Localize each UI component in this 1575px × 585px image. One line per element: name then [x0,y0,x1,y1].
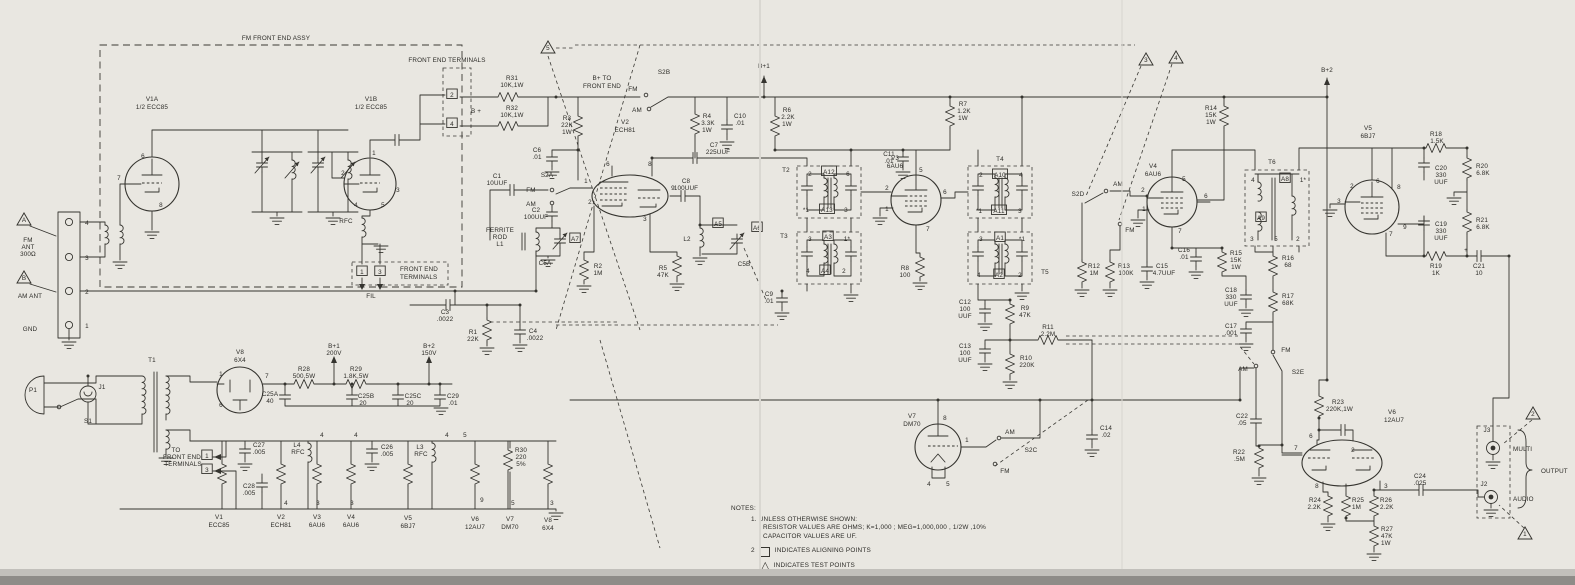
component-label: R23 [1332,399,1344,406]
component-label: 330 [1436,172,1447,179]
component-label: R8 [901,265,910,272]
component-label: J1 [99,384,106,391]
component-label: FRONT END [400,266,438,273]
component-label: B [22,275,26,282]
component-label: AM [632,107,642,114]
component-label: C24 [1414,473,1426,480]
component-label: 1K [1432,270,1441,277]
component-label: AM [1238,366,1248,373]
component-label: C1 [493,173,502,180]
component-label: C16 [1178,247,1190,254]
component-label: 3 [550,500,554,507]
component-label: C7 [710,142,719,149]
component-label: V7 [908,413,916,420]
component-label: 8 [943,415,947,422]
component-label: 3 [1018,208,1022,215]
component-label: ANT [21,244,34,251]
component-label: J3 [1484,427,1491,434]
component-label: B+2 [1321,67,1333,74]
component-label: V6 [1388,409,1396,416]
component-label: .01 [448,400,458,407]
component-label: L4 [293,442,301,449]
audio-output-jack [1485,491,1498,504]
component-label: R13 [1118,263,1130,270]
component-label: 1* [1300,177,1307,184]
component-label: FRONT END [163,454,201,461]
component-label: 3 [1250,236,1254,243]
component-label: C6 [533,147,542,154]
component-label: FM [526,187,535,194]
component-label: 7 [117,175,121,182]
component-label: TERMINALS [164,461,201,468]
component-label: *1 [1019,236,1026,243]
component-label: 5 [511,500,515,507]
note-1-line-1: 1. UNLESS OTHERWISE SHOWN: [751,516,986,525]
component-label: C8 [682,178,691,185]
component-label: R15 [1230,250,1242,257]
component-label: A11 [993,208,1005,215]
component-label: 5 [381,202,385,209]
component-label: .005 [253,449,266,456]
component-label: 7 [1294,445,1298,452]
component-label: 20 [406,400,414,407]
component-label: R17 [1282,293,1294,300]
component-label: T5 [1041,269,1049,276]
component-label: 1 [372,150,376,157]
component-label: R4 [703,113,712,120]
component-label: J2 [1481,481,1488,488]
component-label: L1 [496,241,504,248]
component-label: 3 [1144,57,1148,64]
component-label: V8 [544,517,552,524]
component-label: 1W [702,127,712,134]
component-label: S2D [1072,191,1085,198]
component-label: C9 [765,291,774,298]
component-label: 5 [919,167,923,174]
component-label: 1.5K [1430,138,1444,145]
component-label: 2 [1351,447,1355,454]
v8-rectifier-tube [217,367,263,413]
note-2-number: 2 [751,547,755,556]
component-label: 2.2K [1380,504,1394,511]
component-label: 10K,1W [500,82,523,89]
component-label: 1W [1206,119,1216,126]
component-label: .0022 [437,316,454,323]
component-label: 4 [977,272,981,279]
component-label: A10 [994,172,1006,179]
component-label: FM [23,237,32,244]
component-label: 330 [1436,228,1447,235]
component-label: 5 [1274,236,1278,243]
component-label: 15K [1230,257,1242,264]
component-label: .01 [764,298,774,305]
component-label: P1 [29,387,37,394]
component-label: 1M [593,270,602,277]
component-label: R16 [1282,255,1294,262]
component-label: V7 [506,516,514,523]
component-label: T2 [782,167,790,174]
component-label: AUDIO [1513,496,1534,503]
component-label: FRONT END [583,83,621,90]
component-label: 220K,1W [1326,406,1353,413]
component-label: 2.2K [1307,504,1321,511]
component-label: R11 [1042,324,1054,331]
component-label: ECH81 [270,522,291,529]
component-label: V5 [1364,125,1372,132]
component-label: 1 [205,453,209,460]
component-label: 6 [846,171,850,178]
detector-wiring [1239,246,1302,484]
component-label: DM70 [903,421,921,428]
component-label: V1B [365,96,377,103]
component-label: 1W [958,115,968,122]
component-label: V4 [1149,163,1157,170]
component-label: 4.7UUF [1153,270,1176,277]
component-label: 4 [320,432,324,439]
component-label: A9 [1257,215,1265,222]
schematic-scan: FM FRONT END ASSYV1A1/2 ECC85V1B1/2 ECC8… [0,0,1575,585]
component-label: UUF [1434,235,1447,242]
component-label: 150V [421,350,437,357]
component-label: 4 [1251,177,1255,184]
component-label: R27 [1381,526,1393,533]
component-label: 2 [979,172,983,179]
component-label: R5 [659,265,668,272]
component-label: 6 [141,153,145,160]
component-label: 8 [1315,483,1319,490]
component-label: R19 [1430,263,1442,270]
component-label: 6BJ7 [401,523,416,530]
component-label: C28 [243,483,255,490]
component-label: 2 [1141,187,1145,194]
component-label: R1 [469,329,478,336]
component-label: DM70 [501,524,519,531]
component-label: T4 [996,156,1004,163]
component-label: 8 [648,161,652,168]
component-label: 100UUF [524,214,548,221]
component-label: 1 [1523,531,1527,538]
component-label: R26 [1380,497,1392,504]
component-label: 6 [1204,193,1208,200]
fm-front-end-assembly-box [100,45,462,287]
component-label: 100 [960,306,971,313]
component-label: 1 [885,206,889,213]
v4-tube [1147,177,1197,227]
component-label: 22K [467,336,479,343]
component-label: 20 [359,400,367,407]
component-label: 3 [316,500,320,507]
component-label: 1 [584,178,588,185]
antenna-terminal-strip [30,212,80,348]
component-label: V2 [621,119,629,126]
component-label: FM [1125,227,1134,234]
component-label: 68 [1284,262,1292,269]
component-label: 7 [1178,228,1182,235]
component-label: UUF [958,313,971,320]
component-label: R24 [1309,497,1321,504]
component-label: A4 [821,268,829,275]
component-label: 4 [927,481,931,488]
component-label: V4 [347,514,355,521]
component-label: 4 [806,268,810,275]
component-label: 3.3K [701,120,715,127]
component-label: 8 [159,202,163,209]
component-label: 300Ω [20,251,36,258]
component-label: 200V [326,350,342,357]
schematic-canvas: FM FRONT END ASSYV1A1/2 ECC85V1B1/2 ECC8… [0,0,1575,585]
v3-tube [891,175,941,225]
component-label: 4 [354,202,358,209]
component-label: 1.2K [957,108,971,115]
component-label: 220 [516,454,527,461]
component-label: 2 [842,268,846,275]
component-label: 2.2M [1041,331,1056,338]
component-label: S2A [541,172,554,179]
component-label: .01 [532,154,542,161]
switch-gang-dashed-lines [490,45,1532,548]
component-label: FM FRONT END ASSY [242,35,311,42]
component-label: V6 [471,516,479,523]
component-label: 2 [1531,411,1535,418]
component-label: RFC [414,451,428,458]
heater-string-wiring [120,441,563,519]
component-label: A [22,217,27,224]
component-label: V2 [277,514,285,521]
component-label: R31 [506,75,518,82]
component-label: 3 [396,187,400,194]
component-label: 47K [1381,533,1393,540]
v2-tube [592,175,668,217]
component-label: 8 [1397,184,1401,191]
paper-crease [1121,0,1123,585]
component-label: 9 [480,497,484,504]
component-label: 330 [1226,294,1237,301]
component-label: R30 [515,447,527,454]
component-label: 1/2 ECC85 [355,104,387,111]
output-jack-box [1477,426,1510,518]
component-label: R28 [298,366,310,373]
component-label: .001 [1225,330,1238,337]
component-label: 3 [205,467,209,474]
component-label: 3 [979,236,983,243]
component-label: AM [1005,429,1015,436]
component-label: .0022 [527,335,544,342]
component-label: 1 [360,269,364,276]
component-label: 100 [960,350,971,357]
component-label: 6 [606,161,610,168]
component-label: FRONT END TERMINALS [408,57,485,64]
component-label: *1 [803,207,810,214]
component-label: R32 [506,105,518,112]
component-label: C10 [734,113,746,120]
component-label: 100 [900,272,911,279]
component-label: 3 [378,269,382,276]
component-label: R21 [1476,217,1488,224]
component-label: C29 [447,393,459,400]
component-label: FERRITE [486,227,514,234]
component-label: .5M [1234,456,1245,463]
component-label: C17 [1225,323,1237,330]
component-label: FIL [366,293,376,300]
component-label: 3 [643,216,647,223]
component-label: 3 [1337,198,1341,205]
component-label: 68K [1282,300,1294,307]
component-label: 6X4 [234,357,246,364]
component-label: 22K [561,122,573,129]
component-label: 2 [885,185,889,192]
component-label: 3 [808,236,812,243]
component-label: 5 [946,481,950,488]
component-label: 6 [1309,433,1313,440]
component-label: 4 [450,121,454,128]
component-label: 12AU7 [1384,417,1404,424]
component-label: L3 [416,444,424,451]
component-label: T1 [148,357,156,364]
component-label: 2 [1350,183,1354,190]
component-label: 7 [926,226,930,233]
component-label: R25 [1352,497,1364,504]
component-label: 4 [1019,172,1023,179]
component-label: V5 [404,515,412,522]
component-label: TO [172,447,181,454]
component-label: OUTPUT [1541,468,1568,475]
component-label: 9 [1403,224,1407,231]
component-label: .01 [735,120,745,127]
component-label: C19 [1435,221,1447,228]
component-label: R2 [594,263,603,270]
component-label: 6 [1376,178,1380,185]
component-label: C25A [262,391,279,398]
component-label: S1 [84,418,92,425]
component-label: 6 [219,402,223,409]
fm-front-end-wiring [80,95,445,290]
component-label: S2C [1025,447,1038,454]
component-label: 4 [284,500,288,507]
component-label: C27 [253,442,265,449]
component-label: T3 [780,233,788,240]
notes-heading: NOTES: [731,505,986,514]
note-1-line-2: RESISTOR VALUES ARE OHMS; K=1,000 ; MEG=… [763,524,986,533]
component-label: 1W [782,121,792,128]
multi-output-jack [1487,442,1500,455]
component-label: T6 [1268,159,1276,166]
component-label: A5 [714,221,722,228]
component-label: .025 [1414,480,1427,487]
component-label: C5B [738,261,751,268]
component-label: 6BJ7 [1361,133,1376,140]
component-label: 2 [341,170,345,177]
component-label: 225UUF [706,149,730,156]
component-label: 6.8K [1476,224,1490,231]
component-label: RFC [291,449,305,456]
audio-avc-line [570,340,1254,478]
component-label: 3 [844,207,848,214]
component-label: UUF [958,357,971,364]
component-label: R20 [1476,163,1488,170]
component-label: A2 [995,272,1003,279]
v7-tube [915,424,961,470]
component-label: S2E [1292,369,1304,376]
component-label: R18 [1430,131,1442,138]
component-label: .01 [1179,254,1189,261]
component-label: A13 [821,207,833,214]
component-label: 7 [1389,231,1393,238]
note-2-text: INDICATES ALIGNING POINTS [775,547,871,556]
component-label: 220K [1019,362,1035,369]
scan-shadow [0,576,1575,585]
component-label: C25B [358,393,374,400]
component-label: A1 [996,235,1004,242]
component-label: 5% [516,461,526,468]
component-label: A8 [1281,176,1289,183]
component-label: C12 [959,299,971,306]
component-label: 6.8K [1476,170,1490,177]
component-label: ROD [493,234,508,241]
component-label: 2 [1296,236,1300,243]
aligning-point-legend-icon [760,547,770,557]
component-label: .05 [1237,420,1247,427]
component-label: ECH81 [614,127,635,134]
component-label: UUF [1224,301,1237,308]
component-label: V3 [313,514,321,521]
component-label: 3 [350,500,354,507]
component-label: R14 [1205,105,1217,112]
component-label: UUF [1434,179,1447,186]
component-label: S2B [658,69,670,76]
component-label: C3 [441,309,450,316]
component-label: V1 [215,514,223,521]
component-label: 1W [562,129,572,136]
component-label: 2.2K [781,114,795,121]
note-1-line-3: CAPACITOR VALUES ARE UF. [763,533,986,542]
component-label: 10K,1W [500,112,523,119]
component-label: 1.8K,5W [343,373,368,380]
component-label: 2 [588,199,592,206]
notes-block: NOTES: 1. UNLESS OTHERWISE SHOWN: RESIST… [731,505,986,570]
component-label: 3 [85,255,89,262]
component-label: R29 [350,366,362,373]
component-label: 5 [463,432,467,439]
component-label: C20 [1435,165,1447,172]
component-label: B+2 [423,343,435,350]
component-label: 1M [1352,504,1361,511]
component-label: C21 [1473,263,1485,270]
component-label: C18 [1225,287,1237,294]
component-label: 1 [219,371,223,378]
component-label: B+ TO [593,75,612,82]
component-label: 7 [265,373,269,380]
component-label: 47K [657,272,669,279]
component-label: 47K [1019,312,1031,319]
component-label: .02 [1101,432,1111,439]
component-label: ECC85 [208,522,229,529]
component-label: 2 [450,92,454,99]
component-label: B + [471,108,481,115]
component-label: V3 [891,155,899,162]
component-label: 2 [1018,272,1022,279]
v1b-tube [344,158,396,210]
component-label: 4 [445,432,449,439]
component-label: 6AU6 [1145,171,1162,178]
component-label: A7 [571,236,579,243]
component-label: R10 [1020,355,1032,362]
component-label: 1W [1381,540,1391,547]
component-label: 1 [85,323,89,330]
component-label: 4 [354,432,358,439]
component-label: 10 [1475,270,1483,277]
component-label: TERMINALS [400,274,437,281]
component-label: A12 [823,169,835,176]
